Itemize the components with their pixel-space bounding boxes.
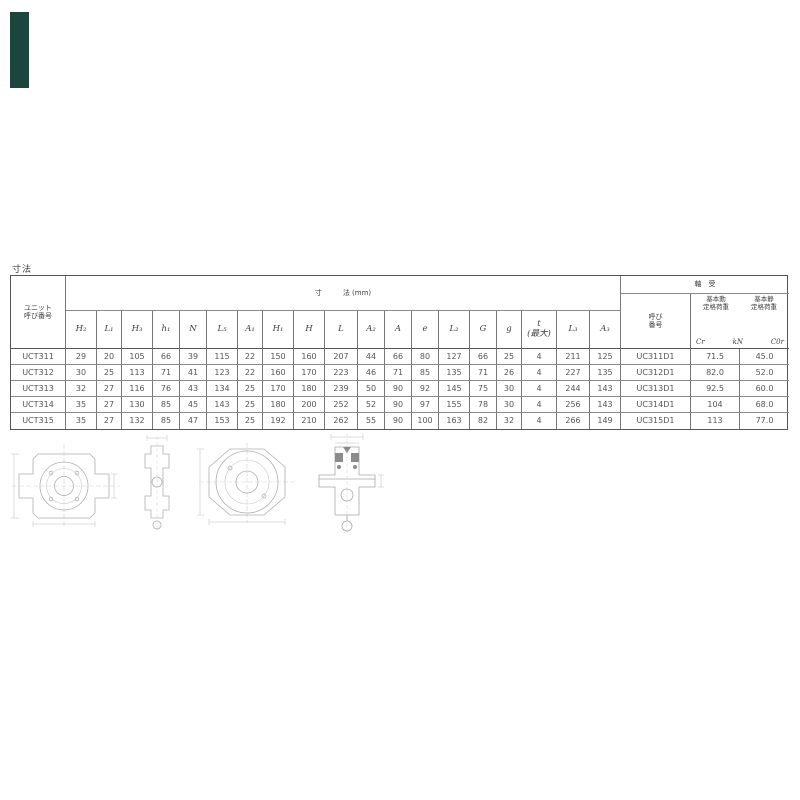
- dim-column-header: L: [325, 311, 358, 349]
- dim-value-cell: 52: [358, 397, 385, 413]
- dimensions-section-header: 寸 法 (mm): [66, 276, 621, 311]
- static-load-cell: 77.0: [740, 413, 789, 429]
- dim-value-cell: 25: [497, 349, 522, 365]
- bearing-section-header: 軸 受: [621, 276, 789, 294]
- dim-value-cell: 85: [412, 365, 439, 381]
- load-dynamic-rating-header: 基本動 定格荷重: [692, 296, 740, 312]
- dim-value-cell: 30: [66, 365, 97, 381]
- bearing-number-cell: UC314D1: [621, 397, 691, 413]
- dim-value-cell: 26: [497, 365, 522, 381]
- static-load-cell: 45.0: [740, 349, 789, 365]
- dim-value-cell: 127: [439, 349, 470, 365]
- load-rating-header: 基本動 定格荷重基本静 定格荷重CrkNC0r: [691, 294, 789, 349]
- bearing-number-cell: UC313D1: [621, 381, 691, 397]
- dim-value-cell: 29: [66, 349, 97, 365]
- dim-value-cell: 143: [590, 381, 621, 397]
- dim-column-header: L₁: [97, 311, 122, 349]
- dim-value-cell: 153: [207, 413, 238, 429]
- kn-unit-label: kN: [733, 338, 743, 346]
- dim-value-cell: 71: [385, 365, 412, 381]
- dim-value-cell: 170: [294, 365, 325, 381]
- dim-value-cell: 4: [522, 397, 557, 413]
- dim-value-cell: 39: [180, 349, 207, 365]
- dim-value-cell: 47: [180, 413, 207, 429]
- dim-value-cell: 149: [590, 413, 621, 429]
- dim-value-cell: 135: [439, 365, 470, 381]
- dim-value-cell: 145: [439, 381, 470, 397]
- dim-value-cell: 75: [470, 381, 497, 397]
- dim-value-cell: 32: [497, 413, 522, 429]
- dim-value-cell: 43: [180, 381, 207, 397]
- dim-value-cell: 25: [238, 413, 263, 429]
- dim-value-cell: 100: [412, 413, 439, 429]
- dim-value-cell: 200: [294, 397, 325, 413]
- dim-value-cell: 55: [358, 413, 385, 429]
- dim-value-cell: 4: [522, 365, 557, 381]
- dim-value-cell: 155: [439, 397, 470, 413]
- dim-value-cell: 150: [263, 349, 294, 365]
- dim-value-cell: 125: [590, 349, 621, 365]
- dynamic-load-cell: 71.5: [691, 349, 740, 365]
- dim-value-cell: 160: [263, 365, 294, 381]
- takeup-unit-side-section-drawing-2: [309, 431, 385, 537]
- dim-value-cell: 80: [412, 349, 439, 365]
- takeup-unit-side-section-drawing: [139, 434, 175, 534]
- dim-value-cell: 66: [153, 349, 180, 365]
- dim-value-cell: 46: [358, 365, 385, 381]
- dim-value-cell: 78: [470, 397, 497, 413]
- dim-value-cell: 123: [207, 365, 238, 381]
- bearing-number-cell: UC312D1: [621, 365, 691, 381]
- dynamic-load-cell: 113: [691, 413, 740, 429]
- dim-value-cell: 32: [66, 381, 97, 397]
- dim-value-cell: 115: [207, 349, 238, 365]
- static-load-cell: 68.0: [740, 397, 789, 413]
- dim-value-cell: 266: [557, 413, 590, 429]
- unit-number-cell: UCT315: [11, 413, 66, 429]
- dim-value-cell: 25: [97, 365, 122, 381]
- dim-value-cell: 207: [325, 349, 358, 365]
- dim-column-header: L₂: [439, 311, 470, 349]
- dim-value-cell: 41: [180, 365, 207, 381]
- technical-drawings: [0, 428, 400, 543]
- dim-value-cell: 30: [497, 397, 522, 413]
- dim-value-cell: 27: [97, 397, 122, 413]
- takeup-unit-front-view-drawing: [10, 442, 122, 528]
- dim-value-cell: 163: [439, 413, 470, 429]
- dim-value-cell: 35: [66, 397, 97, 413]
- dim-value-cell: 20: [97, 349, 122, 365]
- dim-column-header: t (最大): [522, 311, 557, 349]
- dim-column-header: A₃: [590, 311, 621, 349]
- dim-column-header: g: [497, 311, 522, 349]
- dim-value-cell: 30: [497, 381, 522, 397]
- dim-value-cell: 180: [263, 397, 294, 413]
- dim-value-cell: 262: [325, 413, 358, 429]
- dim-value-cell: 116: [122, 381, 153, 397]
- dim-value-cell: 25: [238, 381, 263, 397]
- dim-value-cell: 256: [557, 397, 590, 413]
- dim-value-cell: 160: [294, 349, 325, 365]
- dimension-spec-table: ユニット 呼び番号寸 法 (mm)軸 受H₂L₁H₃h₁NL₅A₁H₁HLA₂A…: [10, 275, 788, 430]
- dim-value-cell: 105: [122, 349, 153, 365]
- dim-value-cell: 113: [122, 365, 153, 381]
- dim-value-cell: 210: [294, 413, 325, 429]
- dim-column-header: A: [385, 311, 412, 349]
- dim-value-cell: 223: [325, 365, 358, 381]
- unit-number-cell: UCT312: [11, 365, 66, 381]
- dim-value-cell: 90: [385, 397, 412, 413]
- dim-column-header: H₁: [263, 311, 294, 349]
- dim-value-cell: 85: [153, 397, 180, 413]
- takeup-unit-front-view-drawing-2: [197, 441, 297, 525]
- dim-value-cell: 85: [153, 413, 180, 429]
- dim-value-cell: 92: [412, 381, 439, 397]
- dim-value-cell: 50: [358, 381, 385, 397]
- dim-value-cell: 170: [263, 381, 294, 397]
- dim-value-cell: 22: [238, 349, 263, 365]
- dim-value-cell: 66: [470, 349, 497, 365]
- dim-column-header: h₁: [153, 311, 180, 349]
- static-load-cell: 52.0: [740, 365, 789, 381]
- dim-value-cell: 90: [385, 413, 412, 429]
- dim-column-header: G: [470, 311, 497, 349]
- dim-column-header: H: [294, 311, 325, 349]
- dynamic-load-cell: 82.0: [691, 365, 740, 381]
- dim-value-cell: 66: [385, 349, 412, 365]
- dim-column-header: e: [412, 311, 439, 349]
- dim-value-cell: 239: [325, 381, 358, 397]
- dim-column-header: L₃: [557, 311, 590, 349]
- dim-column-header: A₂: [358, 311, 385, 349]
- dim-value-cell: 22: [238, 365, 263, 381]
- cor-symbol: C0r: [771, 338, 784, 346]
- dim-value-cell: 252: [325, 397, 358, 413]
- unit-number-cell: UCT311: [11, 349, 66, 365]
- dim-column-header: H₃: [122, 311, 153, 349]
- static-load-cell: 60.0: [740, 381, 789, 397]
- dim-column-header: N: [180, 311, 207, 349]
- dim-value-cell: 27: [97, 413, 122, 429]
- dim-value-cell: 211: [557, 349, 590, 365]
- dim-value-cell: 4: [522, 349, 557, 365]
- dynamic-load-cell: 92.5: [691, 381, 740, 397]
- dim-value-cell: 44: [358, 349, 385, 365]
- load-static-rating-header: 基本静 定格荷重: [740, 296, 788, 312]
- cr-symbol: Cr: [696, 338, 705, 346]
- dim-value-cell: 97: [412, 397, 439, 413]
- table-title: 寸法: [12, 262, 32, 275]
- unit-number-cell: UCT313: [11, 381, 66, 397]
- dim-value-cell: 134: [207, 381, 238, 397]
- bearing-number-cell: UC315D1: [621, 413, 691, 429]
- dim-value-cell: 90: [385, 381, 412, 397]
- dim-value-cell: 192: [263, 413, 294, 429]
- dim-value-cell: 130: [122, 397, 153, 413]
- dim-value-cell: 4: [522, 381, 557, 397]
- dim-value-cell: 143: [590, 397, 621, 413]
- dim-value-cell: 135: [590, 365, 621, 381]
- catalog-page: { "page": { "top_label": "寸法" }, "colors…: [0, 0, 800, 800]
- dim-column-header: H₂: [66, 311, 97, 349]
- dim-value-cell: 82: [470, 413, 497, 429]
- dim-value-cell: 45: [180, 397, 207, 413]
- dynamic-load-cell: 104: [691, 397, 740, 413]
- dim-value-cell: 27: [97, 381, 122, 397]
- dim-value-cell: 4: [522, 413, 557, 429]
- dim-value-cell: 76: [153, 381, 180, 397]
- dim-value-cell: 180: [294, 381, 325, 397]
- bearing-number-column-header: 呼び 番号: [621, 294, 691, 349]
- unit-number-cell: UCT314: [11, 397, 66, 413]
- dim-value-cell: 244: [557, 381, 590, 397]
- dim-column-header: L₅: [207, 311, 238, 349]
- dim-value-cell: 143: [207, 397, 238, 413]
- unit-number-column-header: ユニット 呼び番号: [11, 276, 66, 349]
- bearing-number-cell: UC311D1: [621, 349, 691, 365]
- dim-value-cell: 132: [122, 413, 153, 429]
- dim-column-header: A₁: [238, 311, 263, 349]
- dim-value-cell: 71: [153, 365, 180, 381]
- dim-value-cell: 227: [557, 365, 590, 381]
- dim-value-cell: 71: [470, 365, 497, 381]
- brand-color-bar: [10, 12, 29, 88]
- dim-value-cell: 25: [238, 397, 263, 413]
- dim-value-cell: 35: [66, 413, 97, 429]
